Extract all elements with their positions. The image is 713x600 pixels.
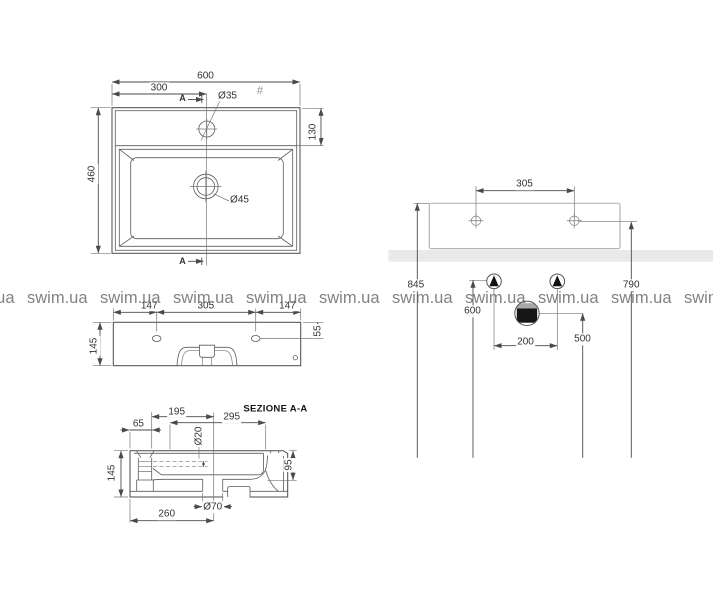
drain-outlet-symbol: [513, 301, 541, 325]
dim-label-790: 790: [621, 279, 641, 291]
front-outline: [113, 322, 300, 365]
dim-label-295: 295: [222, 412, 242, 424]
siphon-cover-shape: [177, 345, 237, 366]
dim-label-95: 95: [283, 457, 295, 471]
dim-label-55: 55: [312, 323, 324, 337]
drain-hole: [190, 171, 230, 203]
dim-label-145-front: 145: [88, 336, 100, 356]
dim-label-130: 130: [307, 122, 319, 142]
dim-label-d45: Ø45: [229, 194, 251, 206]
installation-diagram: [389, 186, 713, 457]
dim-label-460: 460: [86, 164, 98, 184]
dim-label-500: 500: [573, 333, 593, 345]
dim-label-65: 65: [131, 418, 145, 430]
dim-label-600-top: 600: [196, 70, 216, 82]
front-view-drawing: [93, 309, 324, 366]
dim-label-260: 260: [157, 509, 177, 521]
technical-drawing-canvas: [0, 0, 713, 600]
overflow-hole: [293, 356, 297, 360]
dim-label-147-left: 147: [139, 300, 159, 312]
dim-label-d20: Ø20: [193, 425, 205, 447]
dim-label-845: 845: [406, 279, 426, 291]
mounting-hole-right: [251, 336, 260, 342]
wall-band: [389, 250, 713, 262]
top-view-dimensions: [91, 82, 324, 265]
dim-label-200: 200: [516, 336, 536, 348]
basin-front-outline: [429, 203, 620, 248]
dim-label-d35: Ø35: [217, 90, 239, 102]
overflow-standpipe: [136, 451, 207, 492]
dim-label-300: 300: [149, 82, 169, 94]
water-supply-symbol-right: [550, 274, 565, 289]
dim-label-d70: Ø70: [202, 501, 224, 513]
water-supply-symbol-left: [487, 274, 502, 289]
section-marker-a-bottom: A: [179, 256, 186, 266]
top-view-drawing: [91, 82, 324, 266]
section-marker-a-top: A: [179, 93, 186, 103]
dim-label-305-install: 305: [515, 178, 535, 190]
product-dimension-drawing: 600 300 A Ø35 # 130 460 Ø45 A 147 305 14…: [0, 0, 713, 600]
dim-label-195: 195: [167, 406, 187, 418]
dim-label-147-right: 147: [278, 300, 298, 312]
dim-label-145-section: 145: [107, 463, 119, 483]
faucet-hole: [196, 98, 221, 141]
section-title: SEZIONE A-A: [242, 405, 309, 416]
mounting-hole-left: [152, 336, 161, 342]
dim-label-600-install: 600: [463, 305, 483, 317]
dim-label-305-front: 305: [196, 300, 216, 312]
hash-mark: #: [255, 85, 264, 98]
